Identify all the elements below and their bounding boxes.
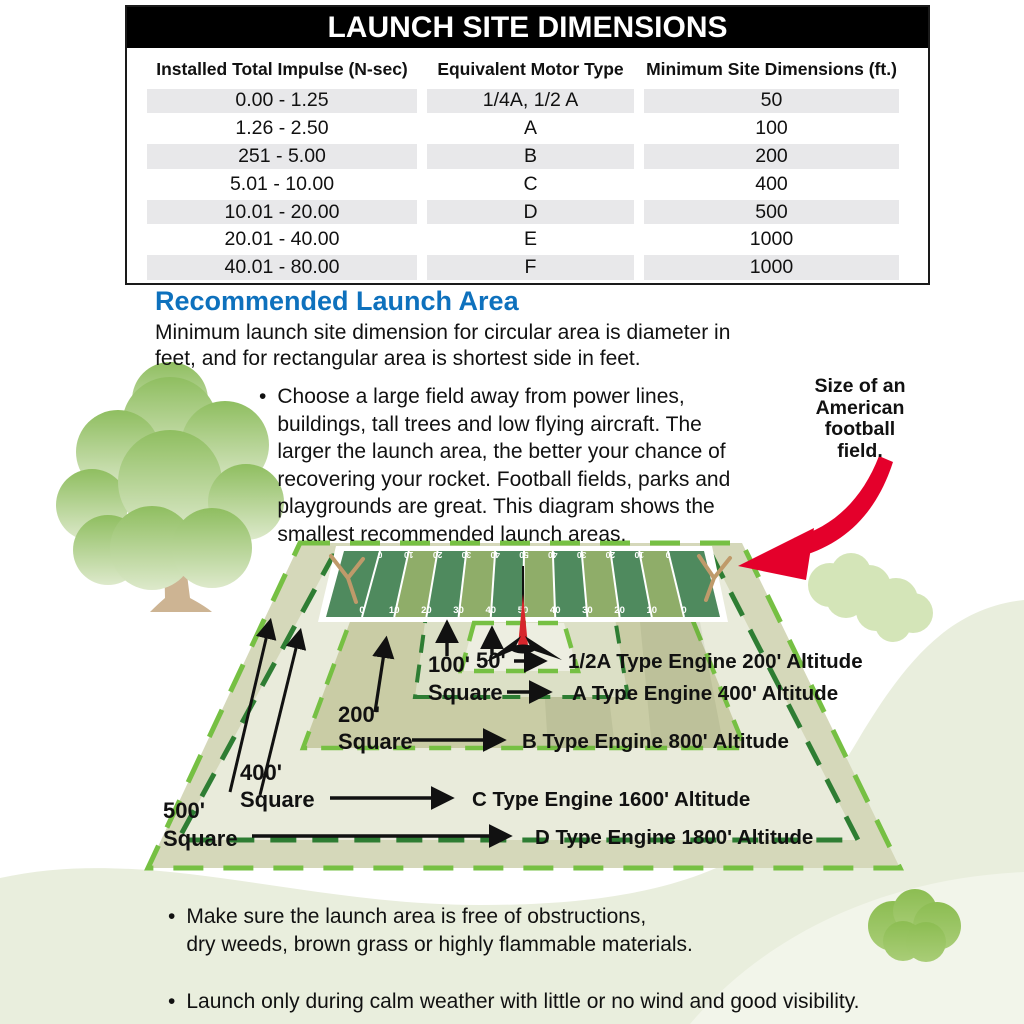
- section-heading: Recommended Launch Area: [155, 286, 519, 317]
- label-500-square: Square: [163, 826, 238, 851]
- yard-number: 30: [582, 605, 593, 616]
- table-cell: D: [427, 200, 634, 225]
- yard-number: 20: [605, 550, 615, 560]
- table-cell: 500: [644, 200, 899, 225]
- bullet-marker: •: [168, 903, 175, 958]
- label-400: 400': [240, 760, 282, 785]
- table-row: 0.00 - 1.251/4A, 1/2 A50: [127, 87, 928, 115]
- table-cell: F: [427, 255, 634, 280]
- table-row: 40.01 - 80.00F1000: [127, 254, 928, 282]
- section-intro: Minimum launch site dimension for circul…: [155, 320, 815, 372]
- engine-D: D Type Engine 1800' Altitude: [535, 826, 813, 849]
- table-cell: 251 - 5.00: [147, 144, 417, 169]
- table-cell: 10.01 - 20.00: [147, 200, 417, 225]
- table-row: 1.26 - 2.50A100: [127, 115, 928, 143]
- column-header: Equivalent Motor Type: [427, 59, 634, 80]
- label-500: 500': [163, 798, 205, 823]
- yard-number: 10: [389, 605, 400, 616]
- table-cell: A: [427, 116, 634, 141]
- bullet-obstructions: • Make sure the launch area is free of o…: [168, 903, 888, 958]
- yard-number: 10: [634, 550, 644, 560]
- table-cell: B: [427, 144, 634, 169]
- football-field-note: Size of an American football field.: [798, 376, 922, 462]
- table-cell: C: [427, 172, 634, 197]
- table-cell: 40.01 - 80.00: [147, 255, 417, 280]
- table-cell: 100: [644, 116, 899, 141]
- table-cell: 0.00 - 1.25: [147, 89, 417, 114]
- yard-number: 30: [453, 605, 464, 616]
- table-cell: 20.01 - 40.00: [147, 228, 417, 253]
- table-cell: 5.01 - 10.00: [147, 172, 417, 197]
- label-50: 50': [476, 648, 506, 673]
- bullet-choose-field: • Choose a large field away from power l…: [259, 383, 799, 548]
- yard-number: 30: [577, 550, 587, 560]
- engine-halfA: 1/2A Type Engine 200' Altitude: [568, 650, 863, 673]
- bush-illustration: [808, 553, 933, 642]
- bullet-weather: • Launch only during calm weather with l…: [168, 988, 1008, 1016]
- launch-site-dimensions-table: LAUNCH SITE DIMENSIONS Installed Total I…: [125, 5, 930, 285]
- bullet-text: Choose a large field away from power lin…: [277, 383, 730, 548]
- table-cell: 50: [644, 89, 899, 114]
- yard-number: 40: [486, 605, 497, 616]
- table-header-row: Installed Total Impulse (N-sec) Equivale…: [127, 48, 928, 87]
- table-cell: 400: [644, 172, 899, 197]
- engine-A: A Type Engine 400' Altitude: [572, 682, 838, 705]
- yard-number: 0: [377, 550, 382, 560]
- yard-number: 0: [359, 605, 364, 616]
- label-200-square: Square: [338, 729, 413, 754]
- table-row: 10.01 - 20.00D500: [127, 198, 928, 226]
- bullet-text: Launch only during calm weather with lit…: [186, 988, 859, 1016]
- yard-number: 20: [614, 605, 625, 616]
- table-row: 20.01 - 40.00E1000: [127, 226, 928, 254]
- table-body: 0.00 - 1.251/4A, 1/2 A501.26 - 2.50A1002…: [127, 87, 928, 282]
- yard-number: 0: [681, 605, 686, 616]
- yard-number: 40: [550, 605, 561, 616]
- yard-number: 40: [490, 550, 500, 560]
- yard-number: 20: [433, 550, 443, 560]
- column-header: Minimum Site Dimensions (ft.): [644, 59, 899, 80]
- label-200: 200': [338, 702, 380, 727]
- table-row: 251 - 5.00B200: [127, 143, 928, 171]
- table-title: LAUNCH SITE DIMENSIONS: [127, 7, 928, 48]
- yard-number: 10: [404, 550, 414, 560]
- label-100-square: Square: [428, 680, 503, 705]
- engine-B: B Type Engine 800' Altitude: [522, 730, 789, 753]
- bullet-text: Make sure the launch area is free of obs…: [186, 903, 693, 958]
- table-cell: E: [427, 228, 634, 253]
- engine-C: C Type Engine 1600' Altitude: [472, 788, 750, 811]
- yard-number: 30: [461, 550, 471, 560]
- label-100: 100': [428, 652, 470, 677]
- yard-number: 20: [421, 605, 432, 616]
- column-header: Installed Total Impulse (N-sec): [147, 59, 417, 80]
- table-cell: 200: [644, 144, 899, 169]
- table-cell: 1.26 - 2.50: [147, 116, 417, 141]
- table-cell: 1000: [644, 228, 899, 253]
- yard-number: 50: [519, 550, 529, 560]
- tree-illustration: [56, 362, 284, 612]
- bullet-marker: •: [168, 988, 175, 1016]
- table-row: 5.01 - 10.00C400: [127, 170, 928, 198]
- yard-number: 40: [548, 550, 558, 560]
- table-cell: 1000: [644, 255, 899, 280]
- page: 0010102020303040405050404030302020101000: [0, 0, 1024, 1024]
- table-cell: 1/4A, 1/2 A: [427, 89, 634, 114]
- label-400-square: Square: [240, 787, 315, 812]
- yard-number: 10: [647, 605, 658, 616]
- yard-number: 0: [665, 550, 670, 560]
- bullet-marker: •: [259, 383, 266, 548]
